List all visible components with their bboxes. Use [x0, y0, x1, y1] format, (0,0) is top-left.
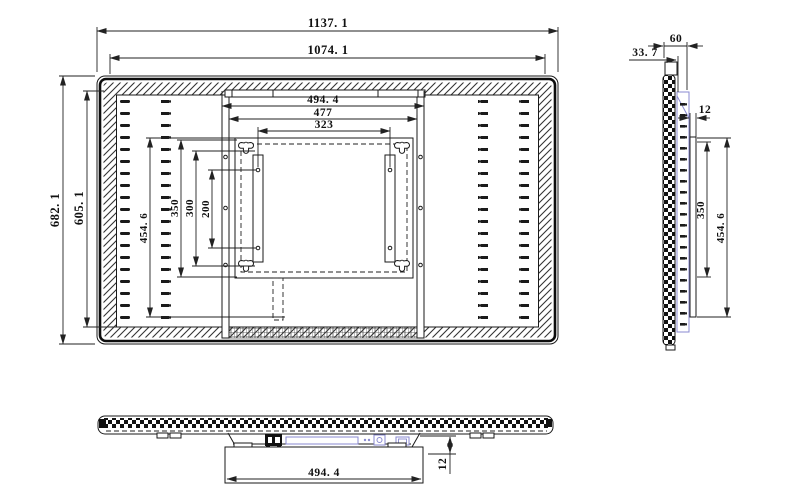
svg-text:350: 350	[169, 199, 181, 217]
bottom-checker-band	[102, 418, 550, 428]
vent-column-left-1	[120, 100, 130, 322]
port-strip-icon	[286, 437, 358, 444]
svg-text:300: 300	[184, 199, 196, 217]
svg-text:494. 4: 494. 4	[308, 467, 340, 479]
bottom-view: 494. 4 12	[98, 416, 553, 483]
power-inlet-slot	[275, 437, 280, 443]
side-top-cap	[665, 62, 677, 75]
dim-inner-width: 1074. 1	[110, 43, 545, 74]
dim-rail-height-side: 350	[695, 142, 711, 277]
svg-text:12: 12	[699, 104, 712, 116]
dim-plate-depth-bottom: 12	[420, 436, 456, 474]
svg-text:323: 323	[315, 119, 334, 131]
side-bottom-cap	[666, 345, 675, 350]
bottom-crosshatch-section	[222, 326, 424, 338]
vent-column-right-2	[519, 100, 529, 322]
svg-text:682. 1: 682. 1	[48, 193, 62, 227]
led-dot-icon	[364, 439, 366, 441]
bottom-left-end-clip	[99, 419, 106, 428]
mount-rail-left	[222, 95, 229, 338]
svg-text:454. 6: 454. 6	[138, 213, 150, 244]
svg-text:494. 4: 494. 4	[307, 94, 339, 106]
dim-bracket-height-side: 454. 6	[697, 138, 731, 317]
mount-rail-right	[417, 95, 424, 338]
svg-text:350: 350	[695, 201, 707, 219]
power-inlet-pin	[268, 437, 272, 443]
svg-text:200: 200	[200, 200, 212, 218]
svg-text:60: 60	[670, 33, 683, 45]
svg-text:477: 477	[314, 107, 333, 119]
side-vent-column	[680, 100, 687, 326]
technical-drawing: 1137. 1 1074. 1 682. 1 605. 1 494. 4	[0, 0, 800, 500]
side-panel-profile	[663, 75, 675, 345]
side-mount-bracket	[690, 137, 696, 317]
bottom-right-end-clip	[546, 419, 552, 427]
vent-column-right-1	[478, 100, 488, 322]
svg-text:33. 7: 33. 7	[632, 47, 658, 59]
svg-text:1074. 1: 1074. 1	[308, 43, 349, 57]
svg-text:1137. 1: 1137. 1	[308, 16, 348, 30]
round-port-icon	[374, 435, 385, 445]
led-dot-icon	[368, 439, 370, 441]
svg-text:605. 1: 605. 1	[72, 191, 86, 225]
svg-text:12: 12	[437, 458, 449, 471]
svg-text:454. 6: 454. 6	[715, 213, 727, 244]
side-view: 60 33. 7 12 350	[629, 33, 731, 350]
